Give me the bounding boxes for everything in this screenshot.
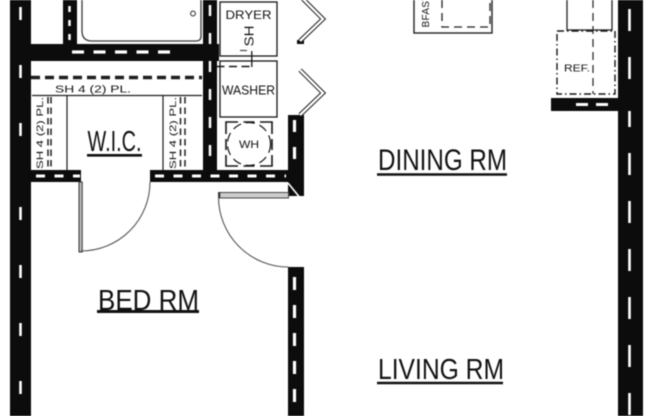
svg-text:SH 4 (2) PL.: SH 4 (2) PL.	[168, 97, 179, 169]
svg-text:SH 4 (2) PL.: SH 4 (2) PL.	[55, 84, 131, 95]
svg-text:SH: SH	[243, 26, 257, 47]
svg-text:DINING RM: DINING RM	[378, 144, 507, 177]
svg-text:WH: WH	[239, 139, 259, 151]
svg-text:LIVING RM: LIVING RM	[378, 354, 504, 386]
svg-text:W.I.C.: W.I.C.	[88, 126, 142, 158]
svg-text:REF.: REF.	[564, 64, 590, 75]
svg-text:WASHER: WASHER	[222, 84, 275, 98]
svg-text:DRYER: DRYER	[226, 8, 272, 22]
svg-text:BFAST BAR: BFAST BAR	[421, 0, 432, 28]
svg-text:SH 4 (2) PL.: SH 4 (2) PL.	[35, 97, 46, 169]
